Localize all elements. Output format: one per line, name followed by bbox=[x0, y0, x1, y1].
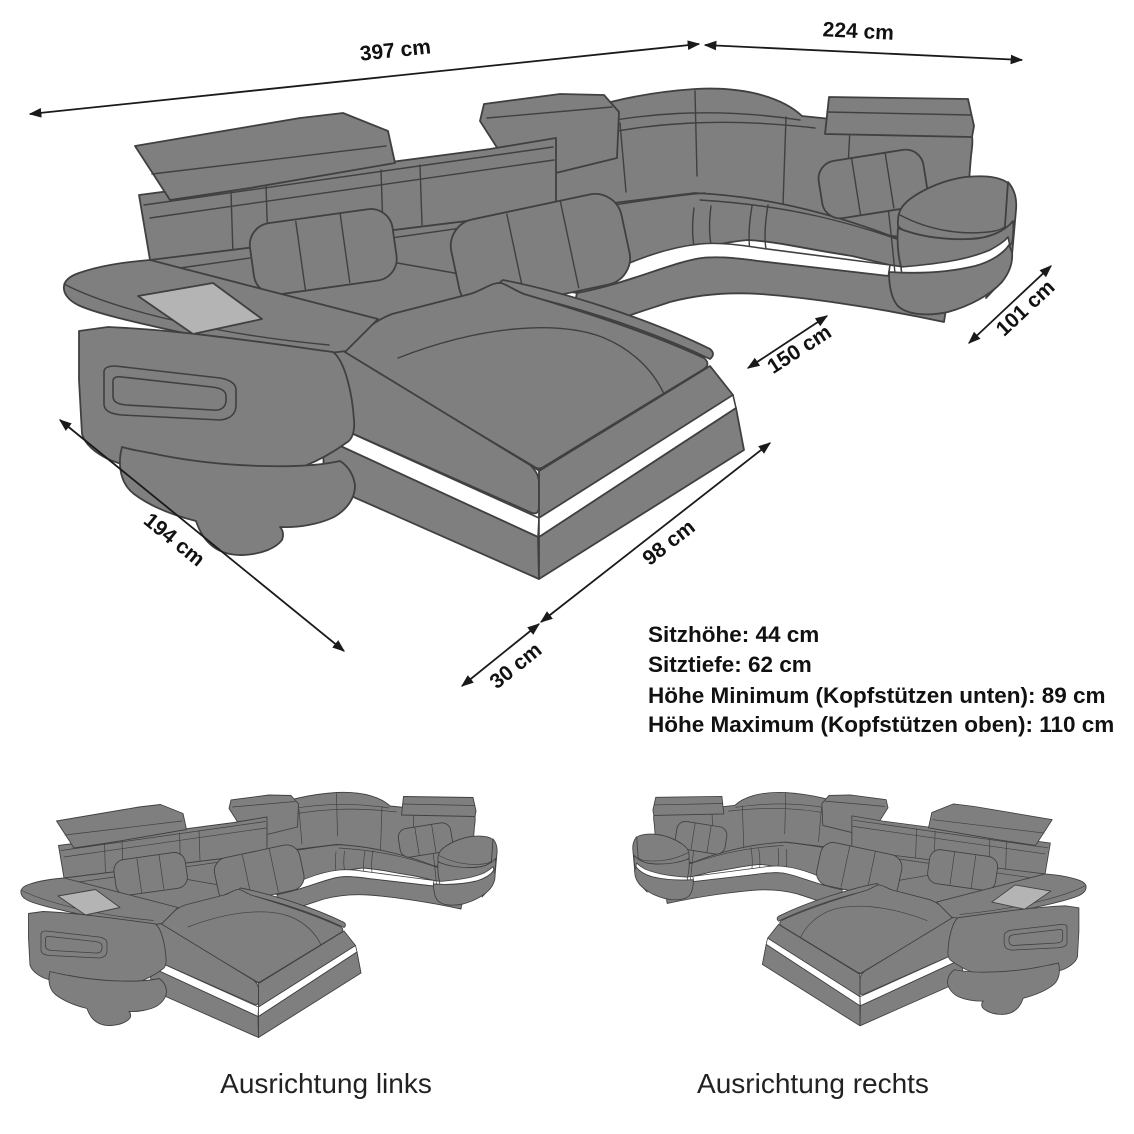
svg-text:Sitzhöhe: 44 cm: Sitzhöhe: 44 cm bbox=[648, 622, 819, 647]
svg-text:98 cm: 98 cm bbox=[638, 515, 699, 570]
svg-text:101 cm: 101 cm bbox=[992, 276, 1060, 341]
svg-text:397 cm: 397 cm bbox=[359, 35, 432, 65]
svg-text:Ausrichtung links: Ausrichtung links bbox=[220, 1068, 432, 1099]
svg-text:Höhe Maximum (Kopfstützen oben: Höhe Maximum (Kopfstützen oben): 110 cm bbox=[648, 712, 1114, 737]
svg-text:30 cm: 30 cm bbox=[486, 638, 547, 693]
svg-text:Höhe Minimum (Kopfstützen unte: Höhe Minimum (Kopfstützen unten): 89 cm bbox=[648, 683, 1106, 708]
svg-text:224 cm: 224 cm bbox=[822, 18, 894, 44]
svg-text:150 cm: 150 cm bbox=[763, 321, 835, 379]
svg-text:Sitztiefe: 62 cm: Sitztiefe: 62 cm bbox=[648, 652, 812, 677]
svg-text:Ausrichtung rechts: Ausrichtung rechts bbox=[697, 1068, 929, 1099]
